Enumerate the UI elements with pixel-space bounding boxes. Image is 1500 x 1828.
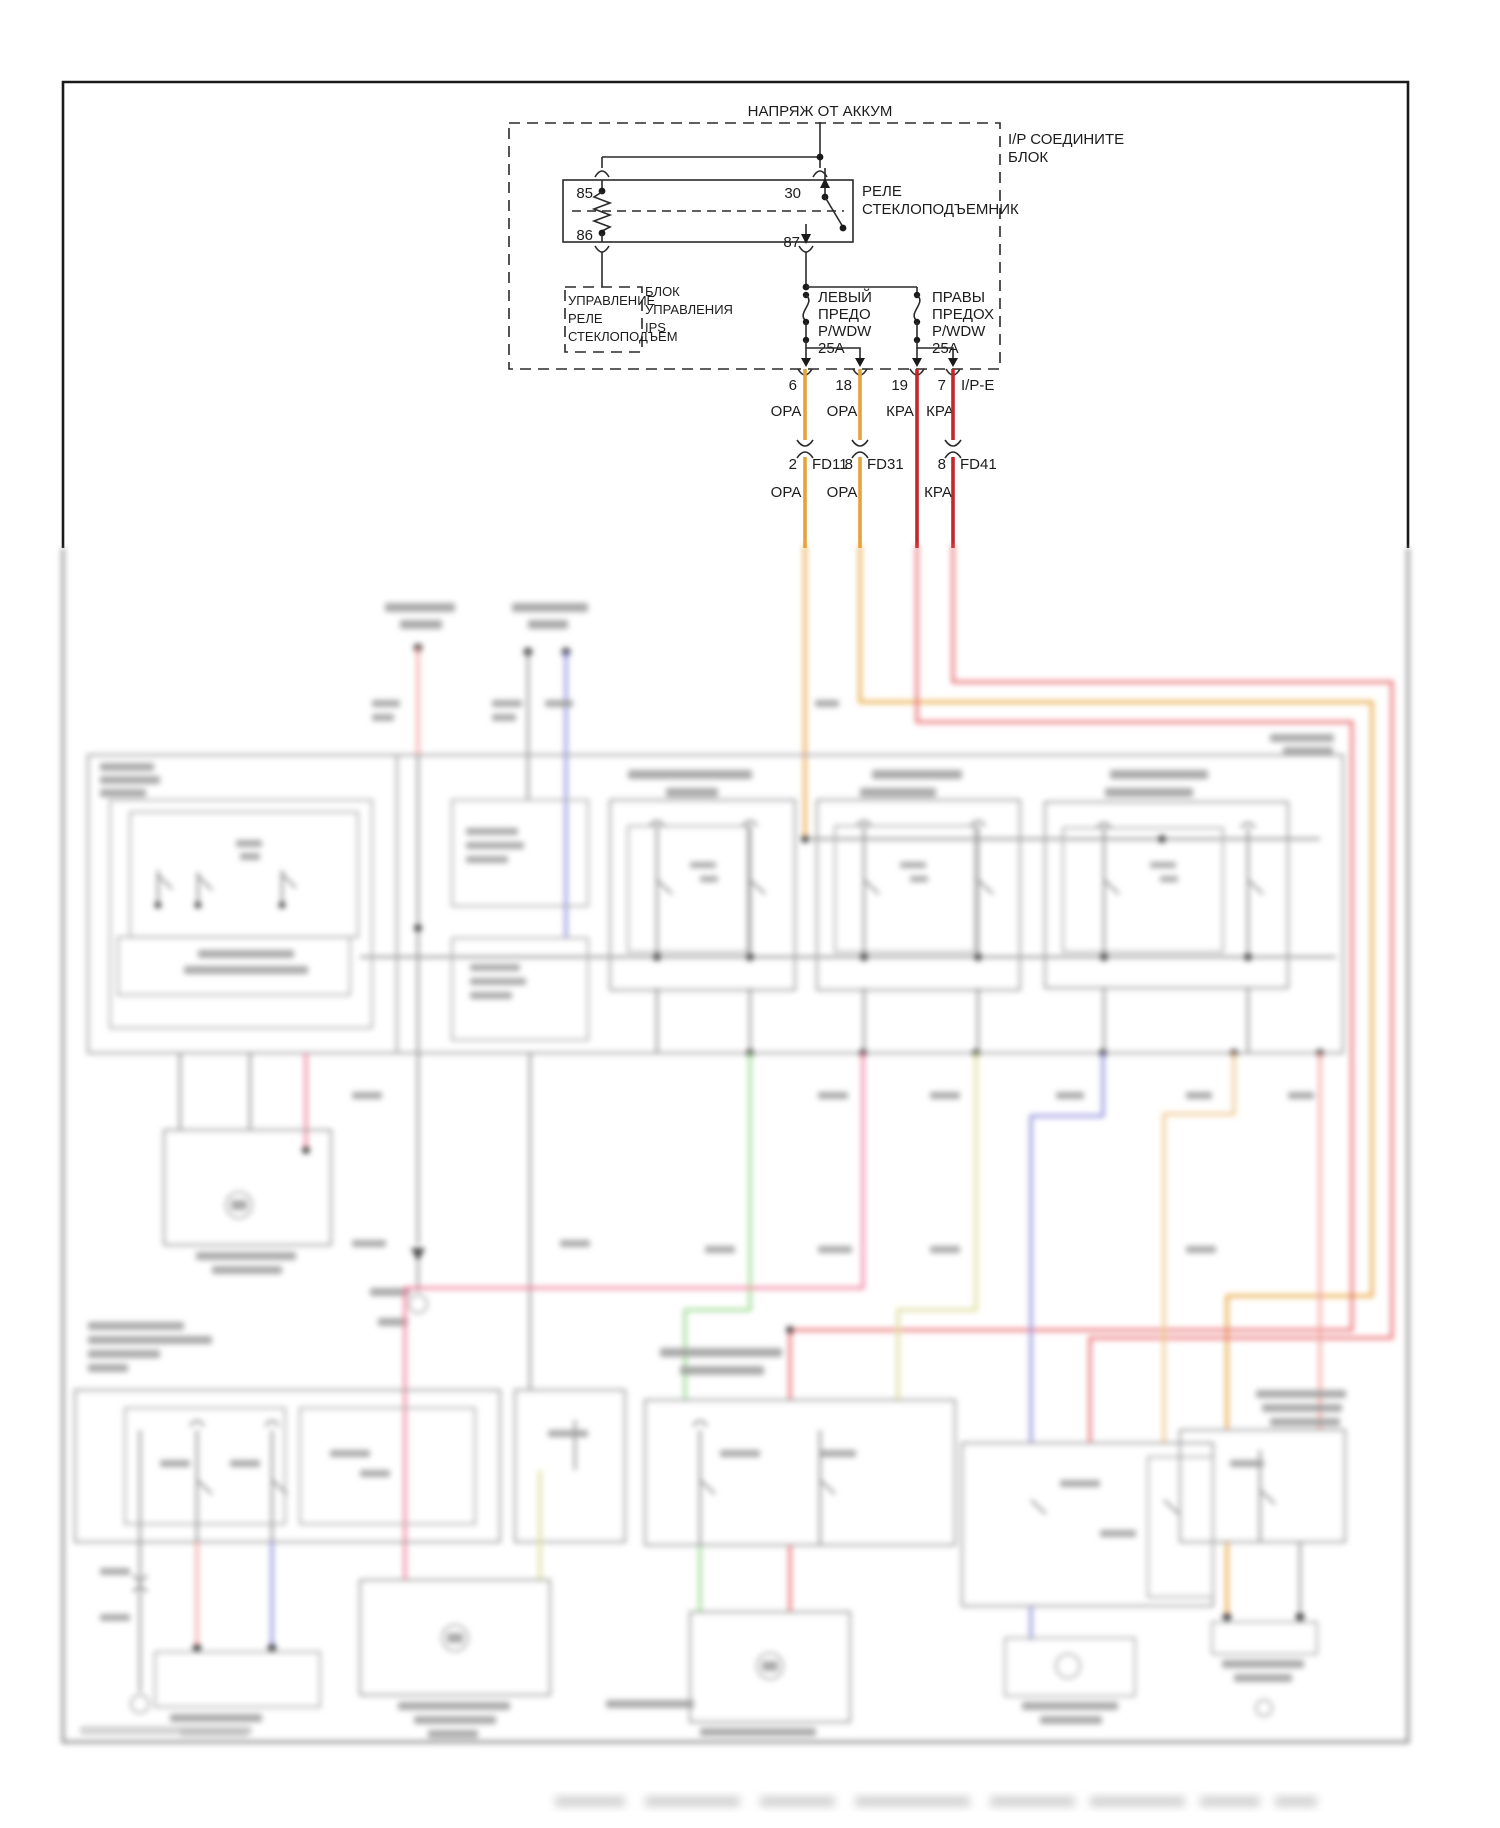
quarter-switch-box: [1180, 1430, 1345, 1542]
connector-bump-icon: [799, 246, 813, 252]
motor-plate: [1212, 1622, 1317, 1654]
relay-label: СТЕКЛОПОДЪЕМНИК: [862, 201, 1019, 218]
wire-blue: [1031, 1053, 1103, 1443]
relay-pin-85: 85: [576, 185, 593, 202]
lock-switch-box: [452, 938, 588, 1040]
motor-plate: [1005, 1638, 1135, 1696]
inline-connector-icon: [945, 440, 961, 446]
blurred-label: [1270, 734, 1334, 742]
ip-block-label: I/P СОЕДИНИТЕ: [1008, 131, 1124, 148]
wire-color-label: КРА: [924, 484, 952, 501]
rear-switch-box-middle: [645, 1400, 955, 1545]
wire-red-fd41-blur: [953, 545, 1392, 1443]
ips-control-label: УПРАВЛЕНИЯ: [645, 302, 733, 317]
fuse-right-label: ПРЕДОХ: [932, 306, 994, 323]
blurred-label: [385, 603, 455, 612]
page-border-bottom: [63, 548, 1408, 1742]
page-border-top: [63, 82, 1408, 548]
wiring-diagram-page: НАПРЯЖ ОТ АККУМ I/P СОЕДИНИТЕ БЛОК РЕЛЕ …: [0, 0, 1500, 1828]
wire-red-pin19-blur: [790, 545, 1352, 1400]
motor-icon: [1056, 1654, 1080, 1678]
blurred-footer-label: [80, 1726, 252, 1735]
inline-connector-icon: [852, 440, 868, 446]
pin-number: 6: [789, 377, 797, 394]
connector-pin: 8: [845, 456, 853, 473]
connector-bump-icon: [595, 171, 609, 177]
wire-color-label: ОРА: [771, 484, 802, 501]
blurred-label: [512, 603, 588, 612]
wire-color-label: КРА: [926, 403, 954, 420]
pin-number: 7: [938, 377, 946, 394]
pin-ipe-label: I/P-E: [961, 377, 994, 394]
ip-block-label: БЛОК: [1008, 149, 1048, 166]
battery-voltage-label: НАПРЯЖ ОТ АККУМ: [748, 103, 893, 120]
switch-box-narrow: [515, 1390, 625, 1542]
wire-pink-long: [405, 1053, 863, 1580]
wire-green: [685, 1053, 750, 1400]
footer-watermark: [555, 1796, 1317, 1807]
relay-pin-86: 86: [576, 227, 593, 244]
inline-connector-icon: [797, 440, 813, 446]
fuse-icon: [914, 295, 920, 321]
connector-pin: 2: [789, 456, 797, 473]
wire-color-label: ОРА: [827, 403, 858, 420]
fuse-left-label: P/WDW: [818, 323, 872, 340]
relay-switch-blade: [825, 197, 843, 227]
connector-bump-icon: [595, 246, 609, 252]
rear-switch-box-left: [75, 1390, 500, 1542]
connector-name: FD41: [960, 456, 997, 473]
relay-pin-87: 87: [783, 234, 800, 251]
rear-switch-box-right: [962, 1443, 1213, 1606]
window-switch-box-2: [817, 800, 1020, 990]
pin-number: 19: [891, 377, 908, 394]
relay-pin-30: 30: [784, 185, 801, 202]
ground-icon: [1256, 1700, 1272, 1716]
fuse-left-label: ПРЕДО: [818, 306, 871, 323]
relay-label: РЕЛЕ: [862, 183, 902, 200]
window-switch-box-1: [610, 800, 795, 990]
wiring-diagram: НАПРЯЖ ОТ АККУМ I/P СОЕДИНИТЕ БЛОК РЕЛЕ …: [0, 0, 1500, 1828]
fuse-left-label: ЛЕВЫЙ: [818, 288, 872, 306]
ips-control-label: БЛОК: [645, 284, 680, 299]
window-switch-box-3: [1045, 802, 1288, 988]
connector-pin: 8: [938, 456, 946, 473]
motor-plate: [155, 1652, 320, 1707]
wire-color-label: ОРА: [827, 484, 858, 501]
crisp-section: НАПРЯЖ ОТ АККУМ I/P СОЕДИНИТЕ БЛОК РЕЛЕ …: [63, 82, 1408, 548]
switch-glyphs: [158, 870, 296, 905]
wire-yellow: [898, 1053, 976, 1400]
fuse-right-label: ПРАВЫ: [932, 289, 985, 306]
relay-control-label: УПРАВЛЕНИЕ: [568, 293, 656, 308]
connector-name: FD11: [812, 456, 848, 473]
ground-icon: [131, 1695, 149, 1713]
relay-control-label: РЕЛЕ: [568, 311, 603, 326]
ground-icon: [409, 1295, 427, 1313]
fuse-icon: [803, 295, 809, 321]
wire-color-label: ОРА: [771, 403, 802, 420]
ips-control-label: IPS: [645, 320, 666, 335]
wire-color-label: КРА: [886, 403, 914, 420]
fuse-right-label: P/WDW: [932, 323, 986, 340]
pin-number: 18: [835, 377, 852, 394]
blurred-section: [63, 545, 1408, 1742]
connector-name: FD31: [867, 456, 904, 473]
